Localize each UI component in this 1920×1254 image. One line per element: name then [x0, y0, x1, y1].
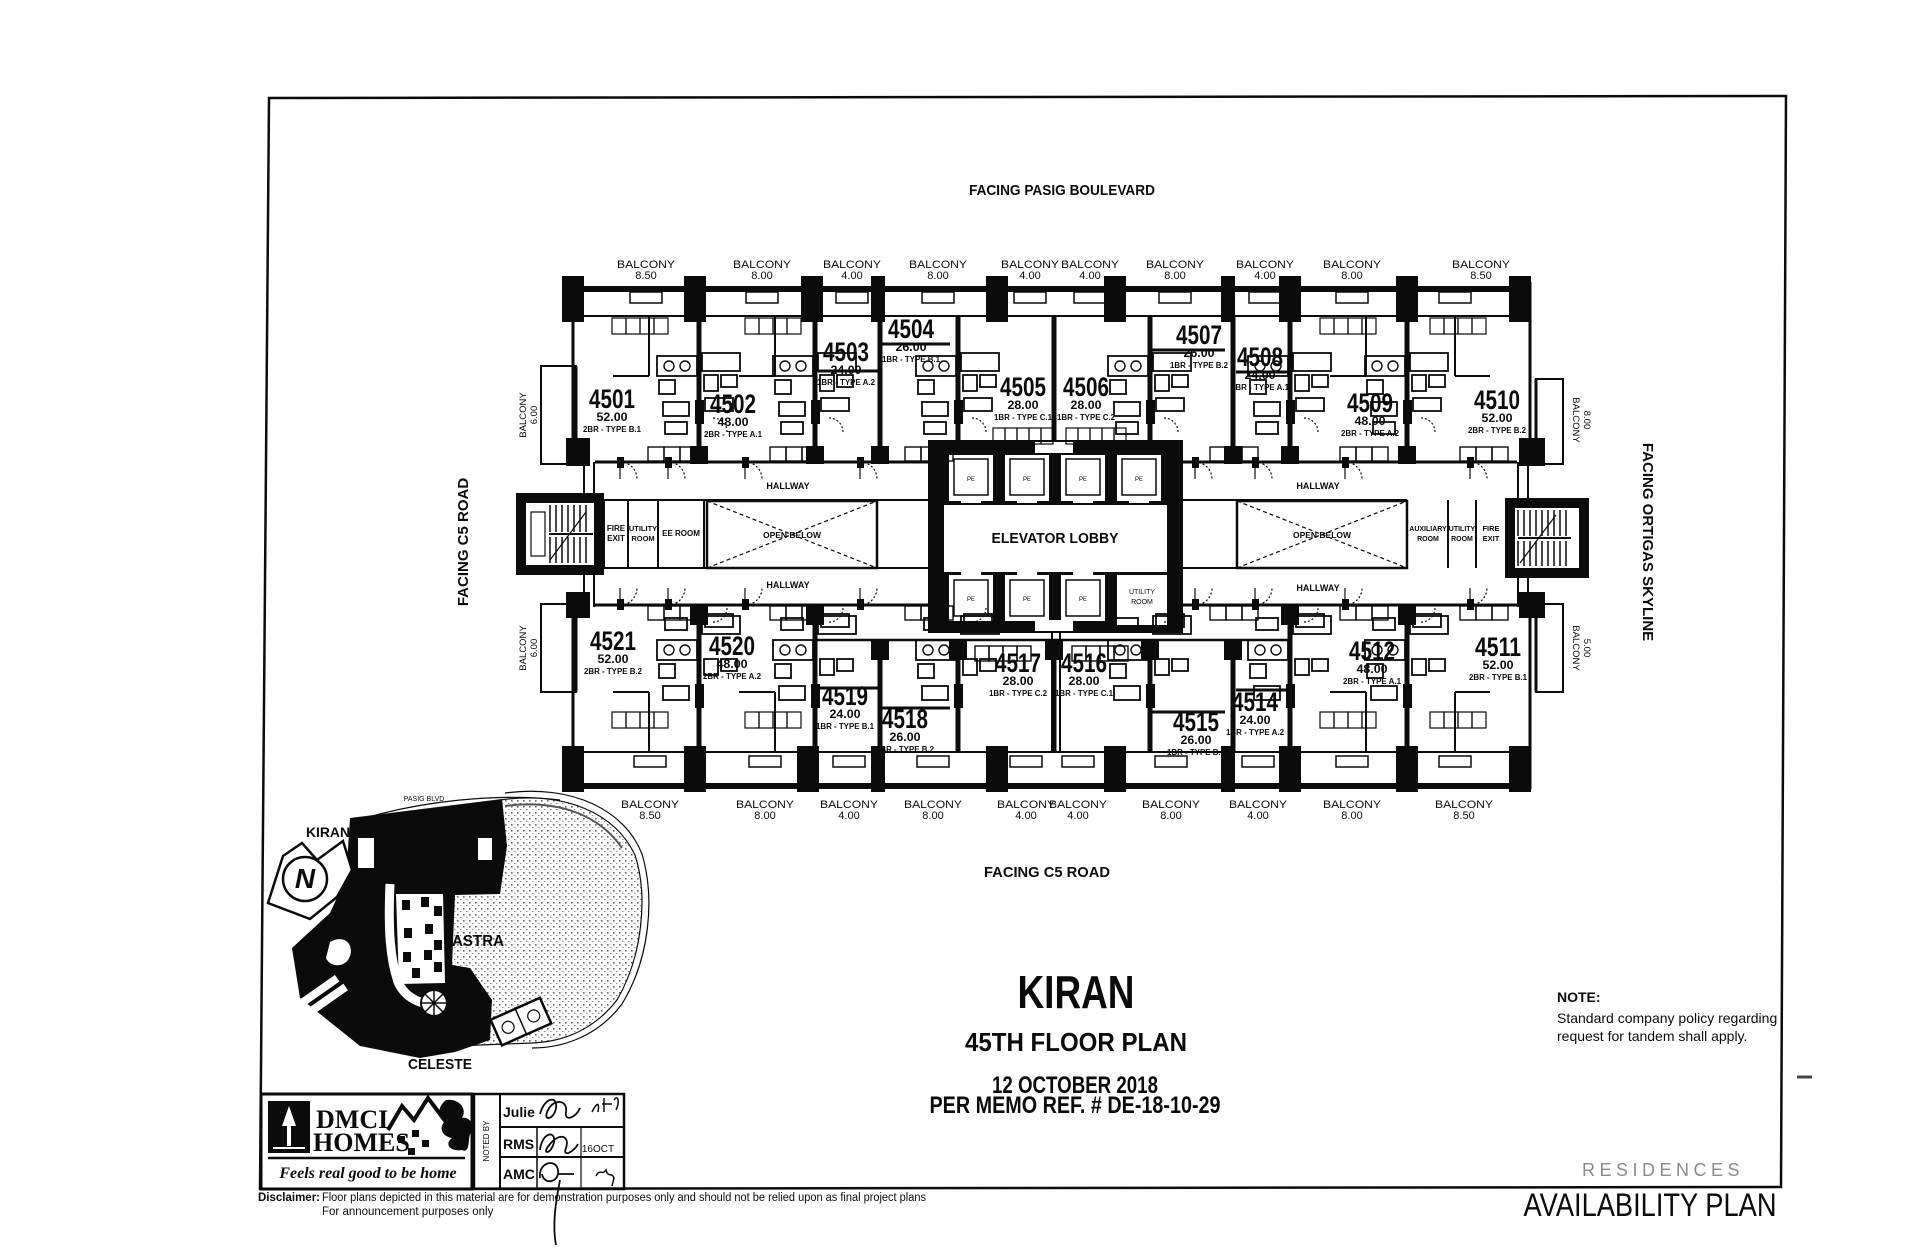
svg-text:KIRAN: KIRAN: [1018, 966, 1135, 1018]
svg-text:PE: PE: [1023, 597, 1031, 603]
svg-text:1BR - TYPE B.1: 1BR - TYPE B.1: [816, 722, 875, 731]
svg-text:FACING C5 ROAD: FACING C5 ROAD: [984, 864, 1110, 881]
svg-text:HOMES: HOMES: [313, 1128, 410, 1157]
svg-text:52.00: 52.00: [1482, 411, 1513, 425]
svg-text:8.50: 8.50: [635, 270, 656, 282]
svg-text:2BR - TYPE A.1: 2BR - TYPE A.1: [704, 430, 763, 439]
svg-text:8.50: 8.50: [639, 810, 660, 822]
svg-text:2BR - TYPE A.2: 2BR - TYPE A.2: [703, 672, 762, 681]
svg-text:PE: PE: [1135, 477, 1143, 483]
svg-text:BALCONY: BALCONY: [1570, 625, 1581, 671]
svg-text:4.00: 4.00: [1247, 810, 1268, 822]
svg-text:48.00: 48.00: [718, 415, 749, 429]
svg-text:16OCT: 16OCT: [582, 1144, 614, 1155]
svg-text:NOTED BY: NOTED BY: [482, 1120, 491, 1162]
svg-text:UTILITY: UTILITY: [629, 524, 657, 533]
svg-text:HALLWAY: HALLWAY: [766, 481, 809, 491]
svg-text:8.00: 8.00: [1341, 270, 1362, 282]
svg-text:28.00: 28.00: [1069, 674, 1100, 688]
svg-text:8.00: 8.00: [927, 270, 948, 282]
svg-text:52.00: 52.00: [598, 652, 629, 666]
svg-text:1BR - TYPE C.2: 1BR - TYPE C.2: [989, 689, 1048, 698]
svg-text:ROOM: ROOM: [631, 534, 654, 543]
svg-text:2BR - TYPE B.1: 2BR - TYPE B.1: [583, 425, 642, 434]
svg-text:28.00: 28.00: [1008, 398, 1039, 412]
svg-text:N: N: [295, 863, 316, 894]
svg-text:KIRAN: KIRAN: [306, 824, 350, 840]
svg-text:ROOM: ROOM: [1131, 599, 1153, 606]
svg-text:BALCONY: BALCONY: [1570, 397, 1581, 443]
svg-text:EXIT: EXIT: [607, 534, 625, 543]
svg-text:1BR - TYPE A.2: 1BR - TYPE A.2: [817, 378, 876, 387]
svg-text:ROOM: ROOM: [1417, 536, 1439, 543]
svg-text:52.00: 52.00: [1483, 658, 1514, 672]
svg-text:BALCONY: BALCONY: [518, 392, 529, 438]
svg-text:4.00: 4.00: [1079, 270, 1100, 282]
svg-text:PE: PE: [967, 597, 975, 603]
svg-text:PE: PE: [1079, 597, 1087, 603]
svg-text:1BR - TYPE A.2: 1BR - TYPE A.2: [1226, 728, 1285, 737]
svg-text:NOTE:: NOTE:: [1557, 989, 1601, 1005]
svg-text:PER MEMO REF. # DE-18-10-29: PER MEMO REF. # DE-18-10-29: [930, 1092, 1221, 1119]
svg-text:1BR - TYPE B.1: 1BR - TYPE B.1: [1167, 748, 1226, 757]
svg-text:8.00: 8.00: [1341, 810, 1362, 822]
svg-text:8.00: 8.00: [754, 810, 775, 822]
svg-text:ASTRA: ASTRA: [452, 933, 504, 950]
svg-text:26.00: 26.00: [896, 340, 927, 354]
svg-text:2BR - TYPE B.1: 2BR - TYPE B.1: [1469, 673, 1528, 682]
svg-text:Standard company policy regard: Standard company policy regarding: [1557, 1010, 1777, 1026]
svg-text:8.00: 8.00: [1581, 411, 1592, 430]
svg-text:8.00: 8.00: [751, 270, 772, 282]
svg-text:52.00: 52.00: [597, 410, 628, 424]
svg-text:FIRE: FIRE: [1482, 524, 1499, 533]
svg-text:ROOM: ROOM: [1451, 536, 1473, 543]
svg-text:4.00: 4.00: [838, 810, 859, 822]
svg-text:26.00: 26.00: [1181, 733, 1212, 747]
svg-text:1BR - TYPE C.1: 1BR - TYPE C.1: [994, 413, 1053, 422]
svg-text:28.00: 28.00: [1003, 674, 1034, 688]
svg-text:PE: PE: [1079, 477, 1087, 483]
svg-text:OPEN BELOW: OPEN BELOW: [763, 530, 822, 540]
svg-text:1BR - TYPE B.2: 1BR - TYPE B.2: [1170, 361, 1229, 370]
svg-text:HALLWAY: HALLWAY: [766, 580, 809, 590]
svg-text:4.00: 4.00: [841, 270, 862, 282]
svg-text:HALLWAY: HALLWAY: [1296, 583, 1339, 593]
svg-text:Julie: Julie: [503, 1104, 535, 1120]
svg-text:28.00: 28.00: [1071, 398, 1102, 412]
svg-text:UTILITY: UTILITY: [1449, 526, 1476, 533]
svg-text:45TH FLOOR PLAN: 45TH FLOOR PLAN: [965, 1027, 1187, 1057]
svg-text:2BR - TYPE B.2: 2BR - TYPE B.2: [584, 667, 643, 676]
svg-text:24.00: 24.00: [830, 707, 861, 721]
svg-text:8.50: 8.50: [1470, 270, 1491, 282]
svg-text:FACING PASIG BOULEVARD: FACING PASIG BOULEVARD: [969, 182, 1155, 199]
svg-text:8.00: 8.00: [1160, 810, 1181, 822]
svg-text:EE ROOM: EE ROOM: [662, 529, 700, 538]
svg-text:4.00: 4.00: [1019, 270, 1040, 282]
svg-text:For announcement purposes only: For announcement purposes only: [322, 1206, 494, 1218]
svg-text:4.00: 4.00: [1254, 270, 1275, 282]
svg-text:6.00: 6.00: [529, 406, 540, 425]
svg-text:PE: PE: [1023, 477, 1031, 483]
svg-text:Disclaimer:: Disclaimer:: [258, 1192, 320, 1204]
svg-text:26.00: 26.00: [890, 730, 921, 744]
svg-text:PE: PE: [967, 477, 975, 483]
svg-text:4.00: 4.00: [1015, 810, 1036, 822]
svg-text:UTILITY: UTILITY: [1129, 589, 1155, 596]
svg-text:8.00: 8.00: [922, 810, 943, 822]
svg-text:8.50: 8.50: [1453, 810, 1474, 822]
svg-text:AMC: AMC: [503, 1166, 535, 1182]
svg-text:EXIT: EXIT: [1483, 534, 1500, 543]
svg-text:BALCONY: BALCONY: [518, 625, 529, 671]
svg-text:ELEVATOR LOBBY: ELEVATOR LOBBY: [992, 531, 1119, 547]
svg-text:request for tandem shall apply: request for tandem shall apply.: [1557, 1028, 1747, 1044]
svg-text:6.00: 6.00: [529, 639, 540, 658]
svg-text:2BR - TYPE B.2: 2BR - TYPE B.2: [1468, 426, 1527, 435]
svg-text:24.00: 24.00: [1240, 713, 1271, 727]
svg-text:CELESTE: CELESTE: [408, 1056, 472, 1073]
svg-text:1BR - TYPE C.1: 1BR - TYPE C.1: [1055, 689, 1114, 698]
svg-text:1BR - TYPE B.2: 1BR - TYPE B.2: [876, 745, 935, 754]
svg-text:AUXILIARY: AUXILIARY: [1409, 526, 1447, 533]
svg-text:Feels real good to be home: Feels real good to be home: [278, 1165, 456, 1182]
svg-text:FIRE: FIRE: [607, 524, 626, 533]
svg-text:FACING ORTIGAS SKYLINE: FACING ORTIGAS SKYLINE: [1639, 443, 1656, 641]
svg-text:1BR - TYPE C.2: 1BR - TYPE C.2: [1057, 413, 1116, 422]
svg-text:4.00: 4.00: [1067, 810, 1088, 822]
svg-text:AVAILABILITY PLAN: AVAILABILITY PLAN: [1524, 1187, 1777, 1223]
svg-text:Floor plans depicted in this m: Floor plans depicted in this material ar…: [322, 1192, 926, 1204]
svg-text:8.00: 8.00: [1164, 270, 1185, 282]
svg-text:5.00: 5.00: [1581, 639, 1592, 658]
svg-text:RESIDENCES: RESIDENCES: [1582, 1160, 1744, 1180]
svg-text:PASIG BLVD: PASIG BLVD: [404, 796, 445, 803]
svg-text:FACING C5 ROAD: FACING C5 ROAD: [455, 478, 472, 607]
svg-text:HALLWAY: HALLWAY: [1296, 481, 1339, 491]
svg-text:RMS: RMS: [503, 1136, 534, 1152]
svg-text:1BR - TYPE A.1: 1BR - TYPE A.1: [1231, 383, 1290, 392]
svg-text:OPEN BELOW: OPEN BELOW: [1293, 530, 1352, 540]
